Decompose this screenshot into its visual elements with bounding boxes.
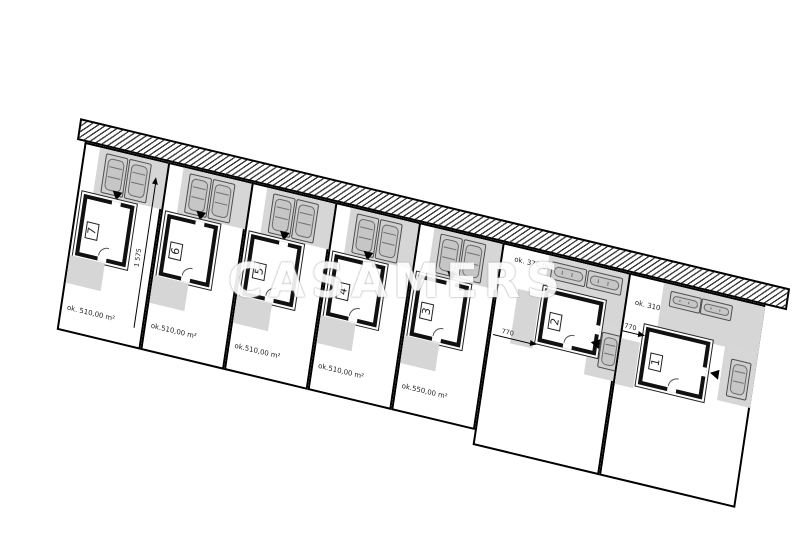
car-icon (271, 198, 292, 234)
door-swing-arc (182, 266, 193, 278)
car-icon (589, 274, 620, 291)
car-icon (703, 303, 729, 317)
door-swing-arc (98, 246, 109, 258)
door-opening (111, 201, 120, 208)
house-number: 6 (168, 241, 183, 261)
area-label: ok.510,00 m² (150, 322, 197, 341)
house-number: 1 (648, 352, 663, 372)
area-label: ok.510,00 m² (234, 342, 281, 361)
door-opening (279, 241, 288, 248)
car-icon (672, 295, 698, 309)
dimension-label-depth: 1 575 (133, 248, 144, 268)
house-walls: 6 (158, 214, 218, 287)
area-label: ok.550,00 m² (401, 382, 448, 401)
plan-rotated-frame: 7 ok. 510,00 m² 1 575 6 (44, 120, 799, 554)
dimension-arrow-icon (530, 340, 538, 348)
car-icon (127, 163, 148, 199)
door-opening (594, 325, 600, 335)
area-label: ok. 510,00 m² (66, 304, 115, 323)
door-opening (195, 221, 204, 228)
house-walls: 7 (75, 194, 135, 267)
house-number: 7 (84, 221, 99, 241)
car-icon (211, 183, 232, 219)
entrance-arrow-icon (590, 337, 600, 349)
entrance-arrow-icon (709, 368, 719, 380)
car-icon (187, 178, 208, 214)
door-opening (701, 367, 707, 377)
car-icon (729, 363, 748, 396)
dimension-arrow-icon (638, 331, 646, 339)
house-walls: 1 (638, 327, 711, 400)
area-label: ok.510,00 m² (318, 362, 365, 381)
door-swing-arc (432, 326, 443, 338)
door-swing-arc (668, 376, 679, 388)
watermark: CASAMERS (228, 254, 566, 309)
plot-1: ok. 310,10 m² 1 770 (599, 272, 765, 507)
car-icon (294, 203, 315, 239)
car-icon (104, 158, 125, 194)
car-icon (355, 218, 376, 254)
door-swing-arc (563, 333, 574, 345)
dimension-arrow-icon (152, 177, 159, 185)
site-plan: 7 ok. 510,00 m² 1 575 6 (0, 0, 799, 554)
house-number: 2 (547, 312, 562, 332)
